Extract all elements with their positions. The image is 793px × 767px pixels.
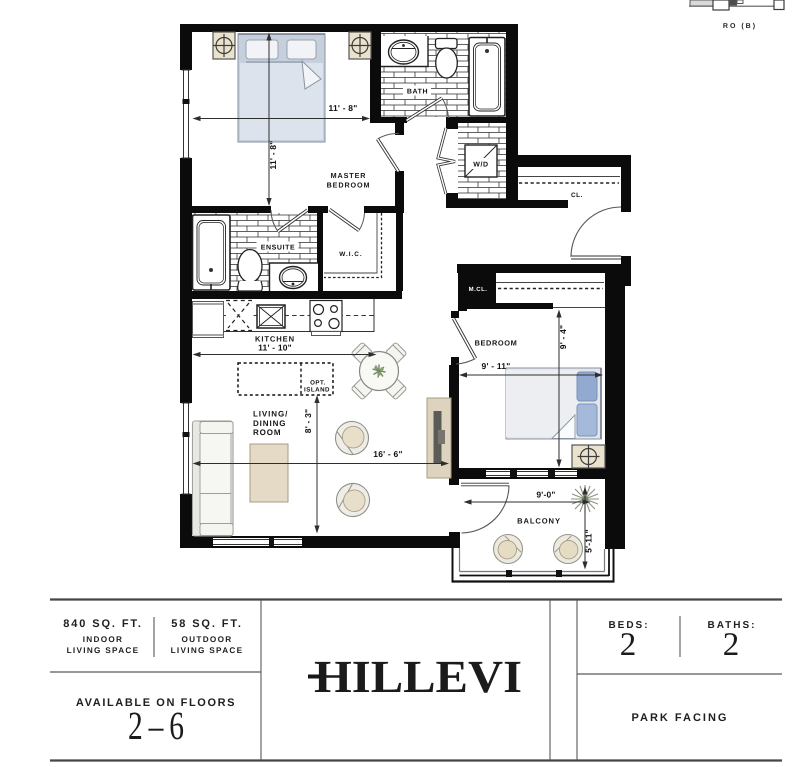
- svg-text:2: 2: [723, 627, 740, 663]
- svg-text:9' - 4": 9' - 4": [558, 325, 568, 349]
- svg-text:ROOM: ROOM: [253, 428, 282, 437]
- svg-text:CL.: CL.: [571, 192, 583, 199]
- svg-text:2 – 6: 2 – 6: [128, 703, 184, 748]
- svg-text:BALCONY: BALCONY: [517, 517, 561, 526]
- svg-text:BEDROOM: BEDROOM: [475, 339, 518, 348]
- svg-text:BEDROOM: BEDROOM: [327, 180, 371, 189]
- svg-text:W.I.C.: W.I.C.: [339, 251, 362, 258]
- svg-text:M.CL.: M.CL.: [469, 286, 488, 293]
- svg-text:MASTER: MASTER: [331, 171, 367, 180]
- svg-text:OUTDOOR: OUTDOOR: [182, 635, 233, 644]
- svg-text:BATH: BATH: [407, 89, 428, 96]
- svg-text:11' - 8": 11' - 8": [329, 103, 358, 113]
- svg-text:HILLEVI: HILLEVI: [314, 651, 522, 702]
- svg-text:PARK FACING: PARK FACING: [632, 712, 729, 724]
- svg-text:DINING: DINING: [253, 419, 286, 428]
- svg-text:11' - 10": 11' - 10": [258, 343, 292, 353]
- svg-text:ENSUITE: ENSUITE: [261, 245, 296, 252]
- svg-text:11' - 8": 11' - 8": [268, 141, 278, 170]
- svg-text:9' - 11": 9' - 11": [482, 361, 511, 371]
- svg-text:OPT.: OPT.: [310, 380, 326, 387]
- svg-text:8' - 3": 8' - 3": [303, 409, 313, 433]
- svg-text:LIVING SPACE: LIVING SPACE: [67, 646, 140, 655]
- svg-text:840 SQ. FT.: 840 SQ. FT.: [63, 618, 143, 630]
- svg-text:LIVING SPACE: LIVING SPACE: [171, 646, 244, 655]
- svg-text:ISLAND: ISLAND: [304, 387, 330, 394]
- svg-text:9'-0": 9'-0": [536, 490, 555, 500]
- svg-text:16' - 6": 16' - 6": [373, 449, 402, 459]
- svg-text:58 SQ. FT.: 58 SQ. FT.: [171, 618, 243, 630]
- svg-text:INDOOR: INDOOR: [83, 635, 124, 644]
- svg-text:RO (B): RO (B): [723, 22, 757, 30]
- svg-text:2: 2: [620, 627, 637, 663]
- svg-text:5'-11": 5'-11": [584, 529, 594, 553]
- svg-text:LIVING/: LIVING/: [253, 410, 288, 419]
- svg-text:W/D: W/D: [473, 161, 488, 169]
